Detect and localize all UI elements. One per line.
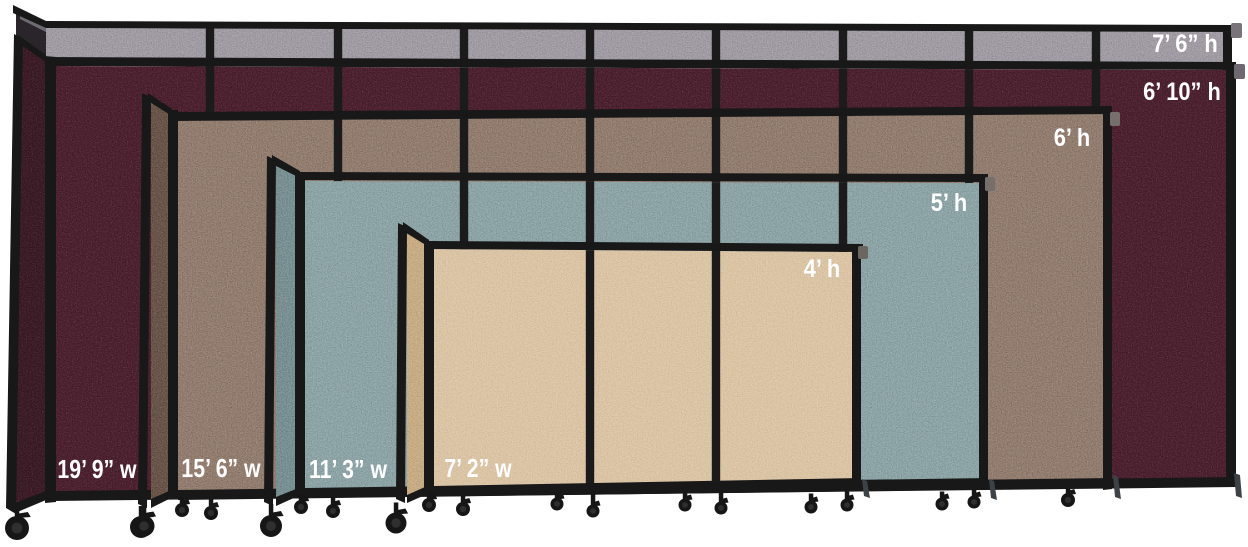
svg-text:4’ h: 4’ h [804,255,840,283]
svg-text:6’ 10” h: 6’ 10” h [1143,78,1221,106]
svg-text:15’ 6” w: 15’ 6” w [181,454,261,482]
svg-text:7’ 6” h: 7’ 6” h [1152,30,1218,58]
svg-text:19’ 9” w: 19’ 9” w [57,455,137,483]
svg-text:7’ 2” w: 7’ 2” w [444,454,512,482]
svg-text:5’ h: 5’ h [931,189,967,217]
svg-text:6’ h: 6’ h [1054,124,1090,152]
svg-text:11’ 3” w: 11’ 3” w [309,455,388,483]
